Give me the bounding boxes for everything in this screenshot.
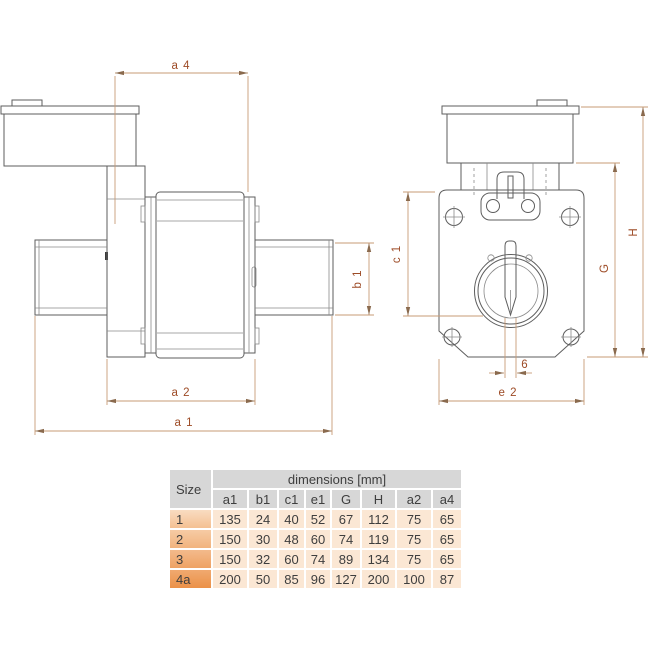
- dimension-cell: 87: [433, 570, 463, 590]
- housing-lid: [1, 106, 139, 114]
- dimension-cell: 40: [279, 510, 306, 530]
- size-cell: 4a: [170, 570, 213, 590]
- dimension-cell: 134: [362, 550, 397, 570]
- blade-terminal-right: [255, 240, 333, 315]
- column-header-e1: e1: [306, 490, 332, 510]
- column-header-b1: b1: [249, 490, 279, 510]
- dimension-cell: 52: [306, 510, 332, 530]
- technical-drawing: a 4 b 1 a 2 a 1: [0, 0, 650, 460]
- table-subheader-row: a1 b1 c1 e1 G H a2 a4: [170, 490, 463, 510]
- blade-terminal-left: [35, 240, 107, 315]
- dimension-cell: 65: [433, 510, 463, 530]
- dimension-label-a2: a 2: [172, 387, 191, 399]
- column-header-G: G: [332, 490, 362, 510]
- dimension-cell: 65: [433, 550, 463, 570]
- dimension-cell: 48: [279, 530, 306, 550]
- table-header-row: Size dimensions [mm]: [170, 470, 463, 490]
- housing-body: [4, 114, 136, 166]
- column-header-H: H: [362, 490, 397, 510]
- dimension-label-e2: e 2: [499, 387, 518, 399]
- dimension-cell: 127: [332, 570, 362, 590]
- dimension-cell: 24: [249, 510, 279, 530]
- dimension-cell: 75: [397, 530, 433, 550]
- housing-tab-front: [537, 100, 567, 106]
- dimension-label-c1: c 1: [391, 245, 403, 263]
- fuse-cap-left: [145, 197, 156, 353]
- dimension-cell: 67: [332, 510, 362, 530]
- dimension-cell: 85: [279, 570, 306, 590]
- dimension-cell: 60: [306, 530, 332, 550]
- table-row: 3 150 32 60 74 89 134 75 65: [170, 550, 463, 570]
- rotary-ring: [475, 255, 548, 328]
- dimension-cell: 74: [332, 530, 362, 550]
- dimension-cell: 100: [397, 570, 433, 590]
- column-header-a4: a4: [433, 490, 463, 510]
- table-row: 2 150 30 48 60 74 119 75 65: [170, 530, 463, 550]
- dimension-cell: 150: [213, 550, 249, 570]
- group-header: dimensions [mm]: [213, 470, 463, 490]
- dimension-cell: 89: [332, 550, 362, 570]
- size-cell: 3: [170, 550, 213, 570]
- size-column-header: Size: [170, 470, 213, 510]
- dimension-label-a1: a 1: [175, 417, 194, 429]
- base-plate: [439, 190, 584, 357]
- dimension-cell: 75: [397, 550, 433, 570]
- dimension-cell: 65: [433, 530, 463, 550]
- dimension-label-H: H: [628, 227, 640, 236]
- latch-pin: [508, 176, 513, 198]
- dimension-cell: 135: [213, 510, 249, 530]
- dimensions-table: Size dimensions [mm] a1 b1 c1 e1 G H a2 …: [170, 470, 463, 590]
- dimension-cell: 112: [362, 510, 397, 530]
- dimension-cell: 30: [249, 530, 279, 550]
- dimension-cell: 96: [306, 570, 332, 590]
- front-view: c 1 G H 6 e 2: [391, 100, 648, 405]
- column-header-a2: a2: [397, 490, 433, 510]
- datasheet-page: a 4 b 1 a 2 a 1: [0, 0, 650, 650]
- size-cell: 1: [170, 510, 213, 530]
- dimension-cell: 32: [249, 550, 279, 570]
- column-header-c1: c1: [279, 490, 306, 510]
- dimension-cell: 119: [362, 530, 397, 550]
- housing-body-front: [447, 114, 573, 163]
- housing-lid-front: [442, 106, 579, 114]
- side-view: a 4 b 1 a 2 a 1: [1, 60, 374, 435]
- dimension-cell: 200: [213, 570, 249, 590]
- table-row: 4a 200 50 85 96 127 200 100 87: [170, 570, 463, 590]
- dimension-label-a4: a 4: [172, 60, 191, 72]
- table-row: 1 135 24 40 52 67 112 75 65: [170, 510, 463, 530]
- fuse-cap-right: [244, 197, 255, 353]
- size-cell: 2: [170, 530, 213, 550]
- mounting-bracket: [481, 193, 540, 220]
- dimension-cell: 60: [279, 550, 306, 570]
- dimension-cell: 75: [397, 510, 433, 530]
- dimension-cell: 74: [306, 550, 332, 570]
- dimension-cell: 50: [249, 570, 279, 590]
- housing-tab: [12, 100, 42, 106]
- column-header-a1: a1: [213, 490, 249, 510]
- dimension-cell: 200: [362, 570, 397, 590]
- dimension-label-G: G: [599, 263, 611, 273]
- dimension-label-6: 6: [521, 359, 528, 371]
- holder-column: [107, 166, 145, 357]
- dimension-cell: 150: [213, 530, 249, 550]
- dimension-label-b1: b 1: [352, 270, 364, 289]
